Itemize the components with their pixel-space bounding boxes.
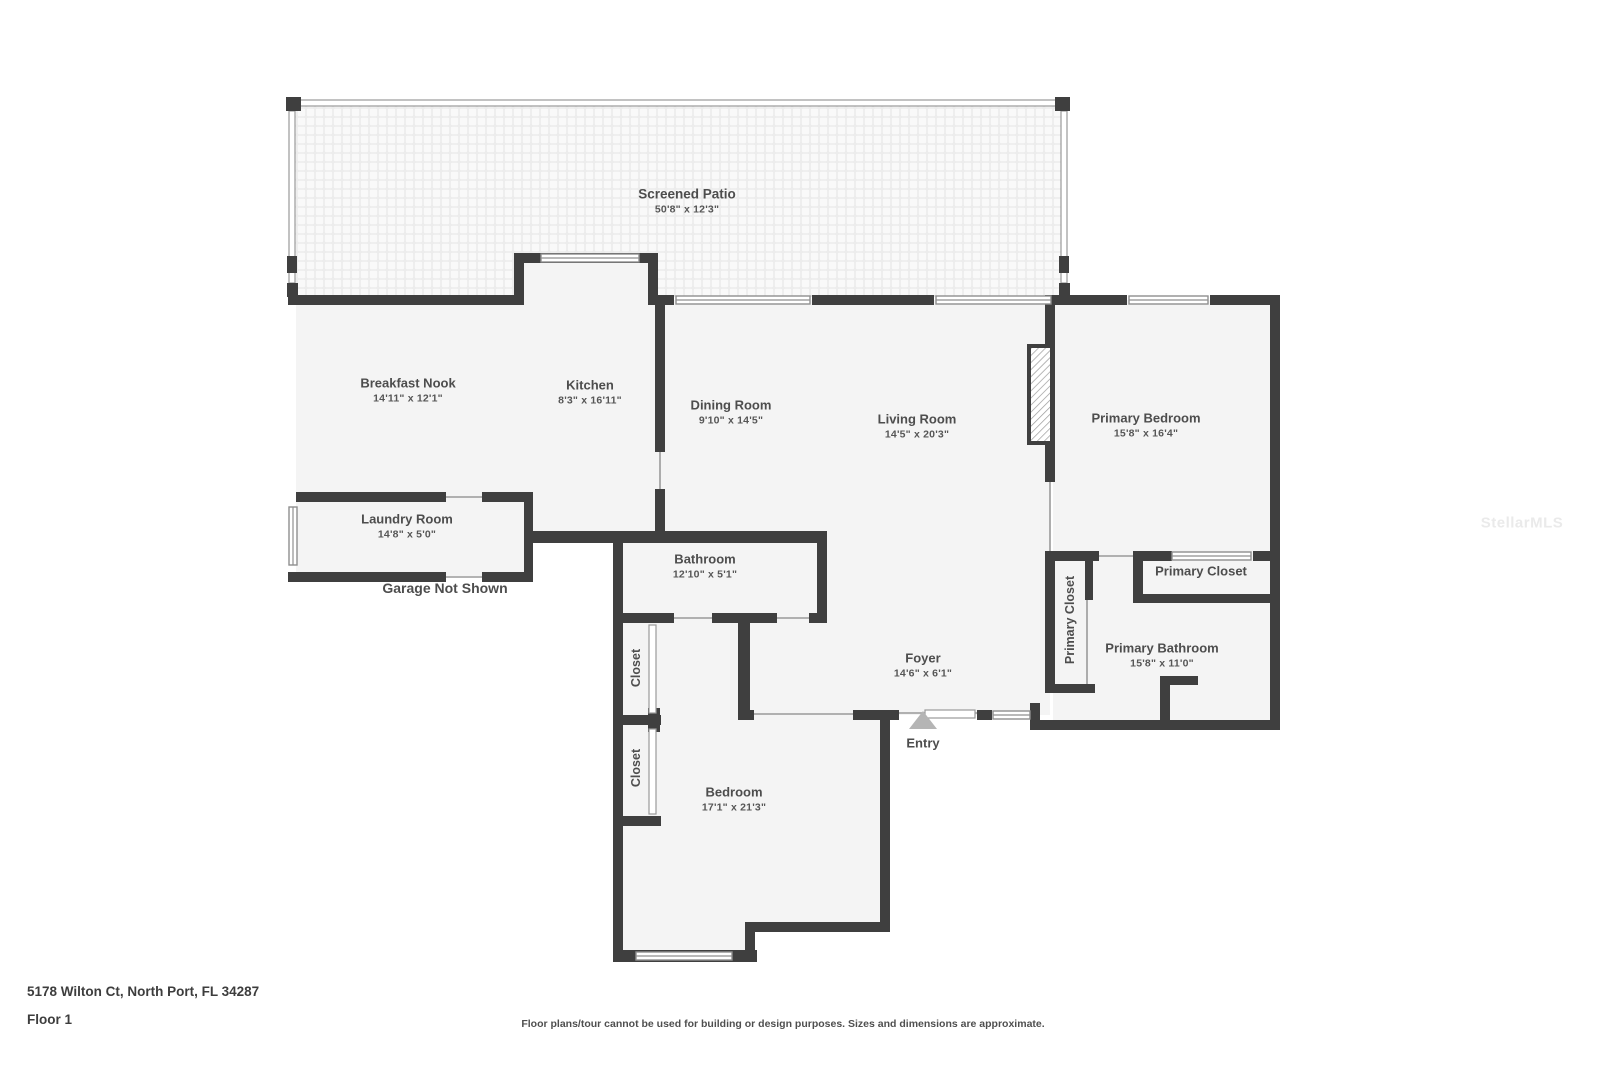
- property-address: 5178 Wilton Ct, North Port, FL 34287: [27, 984, 259, 999]
- floor-indicator: Floor 1: [27, 1012, 72, 1027]
- room-label-foyer: Foyer 14'6" x 6'1": [894, 651, 952, 682]
- floor-plan-drawing: [0, 0, 1600, 1066]
- disclaimer-text: Floor plans/tour cannot be used for buil…: [521, 1018, 1044, 1030]
- room-name: Closet: [628, 649, 644, 687]
- room-name: Breakfast Nook: [360, 376, 455, 393]
- room-name: Primary Bedroom: [1091, 411, 1200, 428]
- room-name: Primary Closet: [1155, 564, 1247, 581]
- room-name: Dining Room: [691, 398, 772, 415]
- room-label-primary-closet-vertical: Primary Closet: [1062, 576, 1078, 664]
- room-label-bathroom: Bathroom 12'10" x 5'1": [673, 552, 737, 583]
- room-label-dining-room: Dining Room 9'10" x 14'5": [691, 398, 772, 429]
- room-name: Screened Patio: [638, 185, 736, 203]
- room-name: Laundry Room: [361, 512, 453, 529]
- room-name: Foyer: [894, 651, 952, 668]
- room-label-closet-2: Closet: [628, 749, 644, 787]
- room-dims: 8'3" x 16'11": [558, 395, 622, 409]
- room-name: Primary Closet: [1062, 576, 1078, 664]
- room-label-primary-closet: Primary Closet: [1155, 564, 1247, 581]
- room-label-laundry-room: Laundry Room 14'8" x 5'0": [361, 512, 453, 543]
- room-dims: 12'10" x 5'1": [673, 569, 737, 583]
- room-label-bedroom: Bedroom 17'1" x 21'3": [702, 785, 766, 816]
- wall-niche-hatched: [1029, 346, 1052, 443]
- room-name: Kitchen: [558, 378, 622, 395]
- room-label-screened-patio: Screened Patio 50'8" x 12'3": [638, 185, 736, 216]
- watermark: StellarMLS: [1481, 515, 1564, 532]
- room-dims: 14'11" x 12'1": [360, 393, 455, 407]
- room-dims: 15'8" x 11'0": [1105, 658, 1218, 672]
- room-dims: 14'5" x 20'3": [878, 429, 957, 443]
- room-name: Bedroom: [702, 785, 766, 802]
- room-dims: 15'8" x 16'4": [1091, 428, 1200, 442]
- room-label-closet-1: Closet: [628, 649, 644, 687]
- room-label-primary-bedroom: Primary Bedroom 15'8" x 16'4": [1091, 411, 1200, 442]
- room-label-breakfast-nook: Breakfast Nook 14'11" x 12'1": [360, 376, 455, 407]
- room-name: Bathroom: [673, 552, 737, 569]
- room-name: Closet: [628, 749, 644, 787]
- room-dims: 14'6" x 6'1": [894, 668, 952, 682]
- entry-label: Entry: [906, 736, 939, 751]
- room-dims: 17'1" x 21'3": [702, 802, 766, 816]
- room-floor-fills: [296, 258, 1273, 956]
- room-dims: 14'8" x 5'0": [361, 529, 453, 543]
- garage-note: Garage Not Shown: [382, 580, 507, 596]
- room-name: Living Room: [878, 412, 957, 429]
- room-dims: 50'8" x 12'3": [638, 203, 736, 217]
- room-label-kitchen: Kitchen 8'3" x 16'11": [558, 378, 622, 409]
- room-dims: 9'10" x 14'5": [691, 415, 772, 429]
- room-label-primary-bathroom: Primary Bathroom 15'8" x 11'0": [1105, 641, 1218, 672]
- room-name: Primary Bathroom: [1105, 641, 1218, 658]
- room-label-living-room: Living Room 14'5" x 20'3": [878, 412, 957, 443]
- floor-plan-page: Screened Patio 50'8" x 12'3" Breakfast N…: [0, 0, 1600, 1066]
